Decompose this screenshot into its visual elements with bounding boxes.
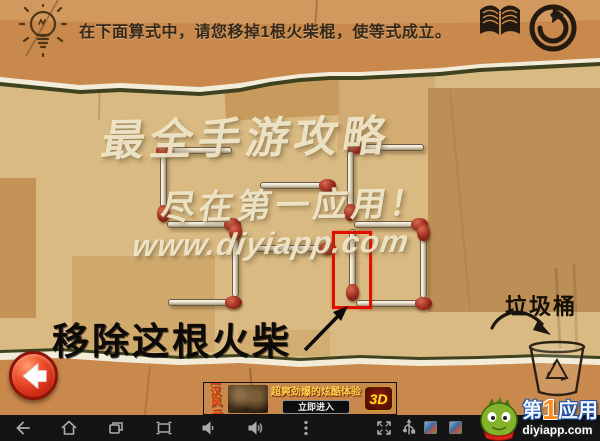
- matchstick-equals-top[interactable]: [260, 182, 330, 189]
- back-button[interactable]: [9, 351, 58, 400]
- matchstick-digit6-lower-right[interactable]: [420, 230, 427, 298]
- nav-home-icon[interactable]: [60, 419, 78, 437]
- highlight-box: [332, 231, 372, 309]
- brand-name: 第1应用: [522, 396, 598, 424]
- matchstick-digit6-upper-left[interactable]: [347, 151, 354, 215]
- trash-bin-label: 垃圾桶: [505, 289, 577, 321]
- ad-warriors-image: [228, 385, 268, 413]
- nav-app-thumbnail-2[interactable]: [449, 421, 462, 434]
- matchstick-digit5-lower-right[interactable]: [232, 229, 239, 297]
- remove-match-annotation: 移除这根火柴: [52, 311, 292, 365]
- back-arrow-icon: [17, 361, 51, 391]
- matchstick-digit5-top[interactable]: [162, 147, 232, 154]
- matchstick-digit6-middle[interactable]: [354, 221, 422, 228]
- nav-fullscreen-icon[interactable]: [375, 419, 393, 437]
- matchstick-equals-bottom[interactable]: [255, 245, 330, 252]
- ad-cta-button[interactable]: 立即进入: [282, 400, 350, 414]
- nav-recents-icon[interactable]: [107, 419, 125, 437]
- matchstick-equation: [0, 0, 600, 441]
- ad-3d-badge: 3D: [364, 386, 393, 411]
- match-head-icon: [417, 224, 430, 241]
- ad-banner[interactable]: 楚汉风云 超爽劲爆的炫酷体验 立即进入 3D: [203, 382, 397, 415]
- match-head-icon: [229, 223, 242, 240]
- match-head-icon: [344, 204, 357, 221]
- matchstick-digit5-upper-left[interactable]: [160, 153, 167, 216]
- match-head-icon: [225, 296, 242, 309]
- ad-game-logo: 楚汉风云: [205, 382, 226, 415]
- ad-tagline: 超爽劲爆的炫酷体验: [271, 383, 361, 398]
- nav-menu-icon[interactable]: [297, 419, 315, 437]
- game-screen: 在下面算式中，请您移掉1根火柴棍，使等式成立。 最全手游攻略 尽在第一应用！ w…: [0, 0, 600, 441]
- match-head-icon: [415, 297, 432, 310]
- diyiapp-logo: 第1应用 diyiapp.com: [478, 396, 598, 441]
- nav-screenshot-icon[interactable]: [155, 419, 173, 437]
- nav-app-thumbnail-1[interactable]: [424, 421, 437, 434]
- matchstick-digit5-bottom[interactable]: [168, 299, 236, 306]
- nav-back-icon[interactable]: [14, 419, 32, 437]
- matchstick-digit6-top[interactable]: [352, 144, 424, 151]
- mascot-icon: [478, 396, 520, 441]
- nav-volume-up-icon[interactable]: [247, 419, 265, 437]
- matchstick-digit5-middle[interactable]: [167, 221, 235, 228]
- match-head-icon: [319, 179, 336, 192]
- nav-usb-icon[interactable]: [400, 419, 418, 437]
- nav-volume-down-icon[interactable]: [200, 419, 218, 437]
- match-head-icon: [157, 205, 170, 222]
- brand-domain: diyiapp.com: [522, 424, 598, 436]
